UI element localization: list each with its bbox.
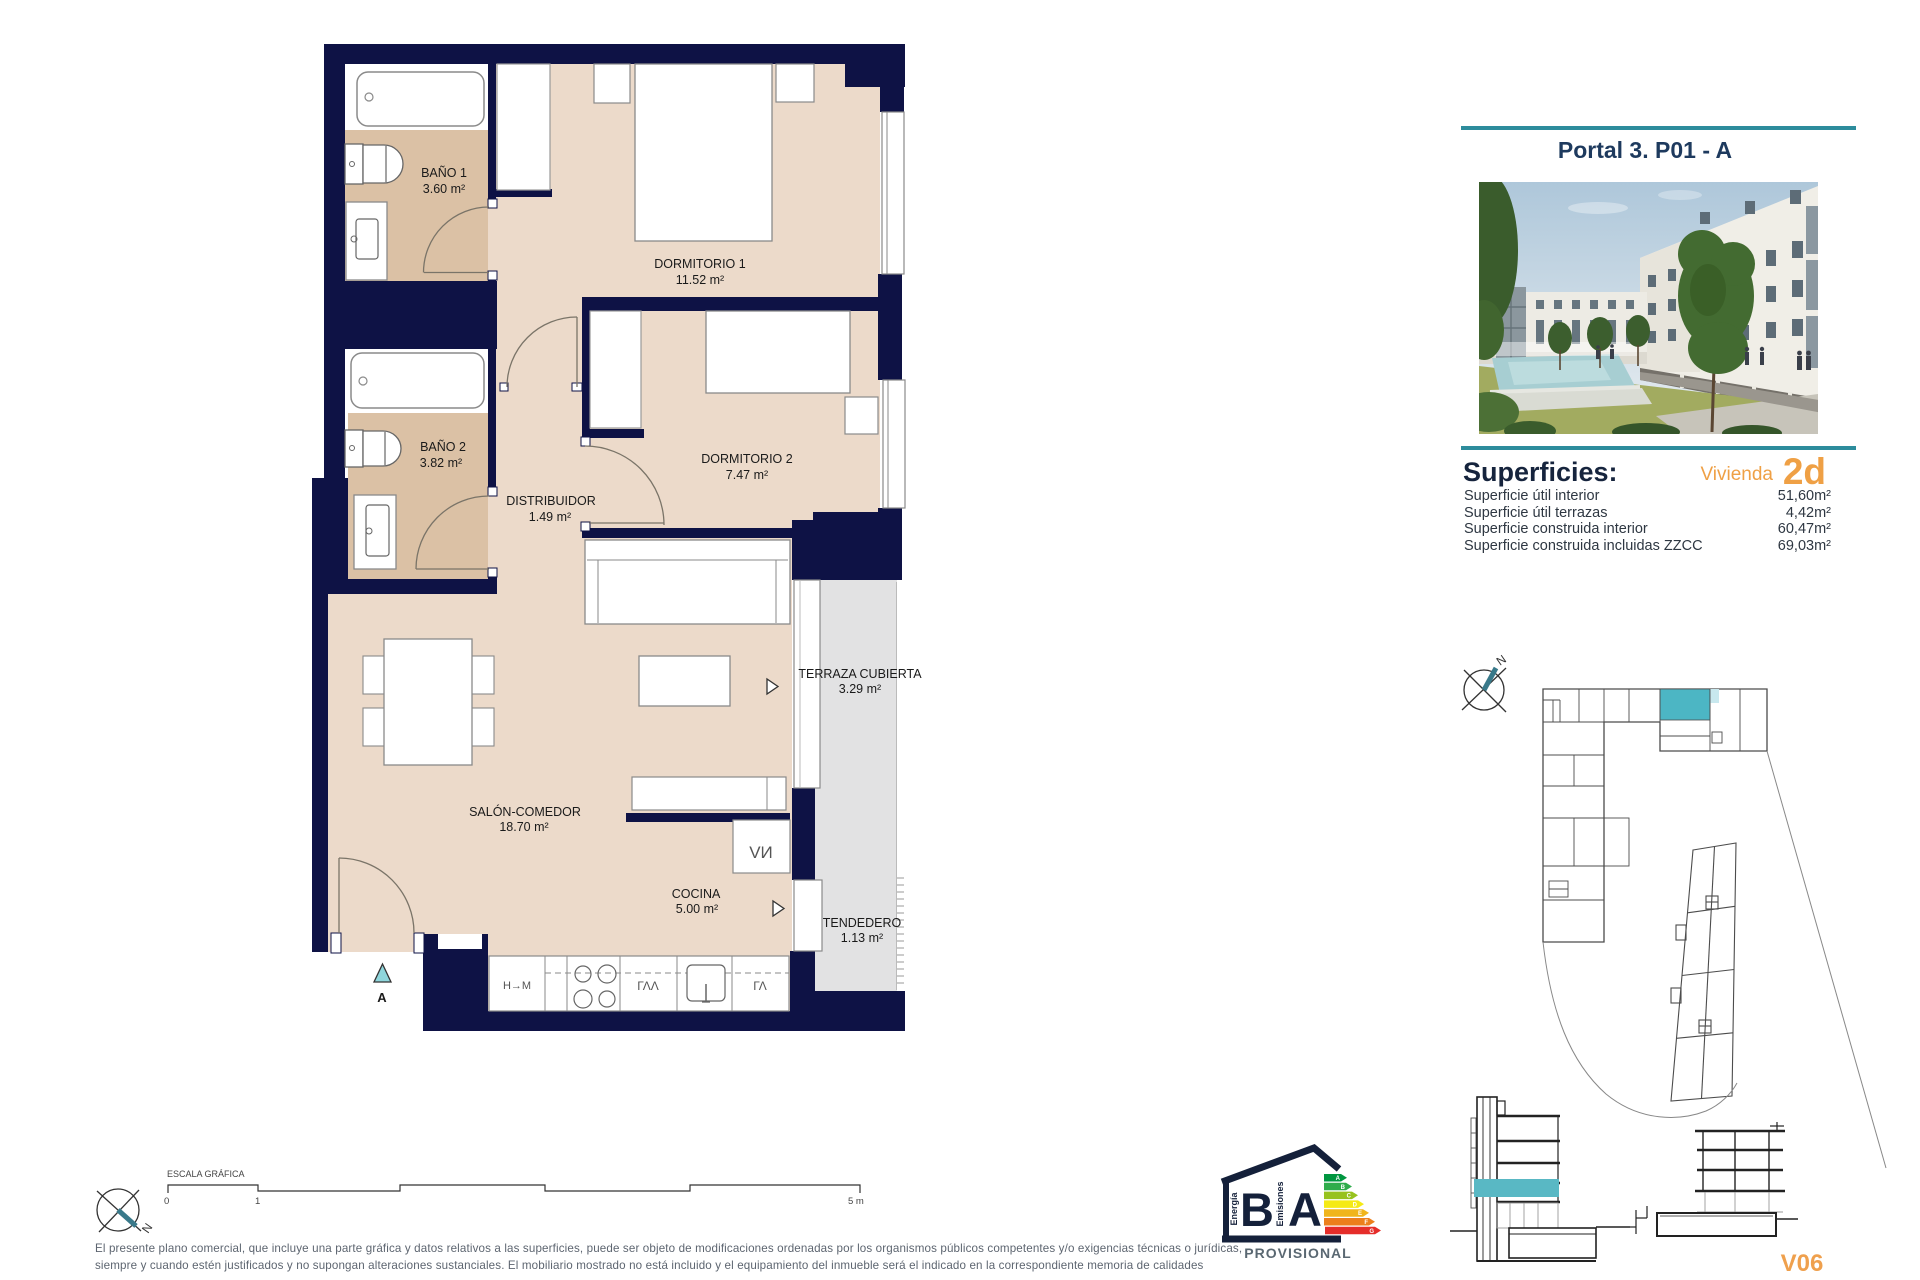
svg-text:ESCALA GRÁFICA: ESCALA GRÁFICA [167,1169,245,1179]
svg-text:Vivienda: Vivienda [1700,464,1773,485]
svg-text:51,60m²: 51,60m² [1778,488,1831,504]
svg-text:VИ: VИ [749,843,773,862]
svg-text:Superficie útil terrazas: Superficie útil terrazas [1464,505,1607,521]
svg-text:Emisiones: Emisiones [1275,1181,1285,1226]
svg-text:H→M: H→M [503,980,531,992]
svg-text:Superficie construida interior: Superficie construida interior [1464,521,1648,537]
svg-text:E: E [1358,1211,1362,1217]
svg-text:1: 1 [255,1196,260,1207]
svg-text:TENDEDERO: TENDEDERO [823,916,902,930]
svg-text:DORMITORIO 1: DORMITORIO 1 [654,257,745,271]
svg-text:D: D [1353,1203,1358,1209]
svg-text:B: B [1240,1183,1274,1236]
svg-text:DORMITORIO 2: DORMITORIO 2 [701,452,792,466]
svg-text:1.13 m²: 1.13 m² [841,931,883,945]
svg-text:5.00 m²: 5.00 m² [676,902,718,916]
svg-text:18.70 m²: 18.70 m² [499,820,548,834]
svg-text:BAÑO 2: BAÑO 2 [420,440,466,454]
svg-text:PROVISIONAL: PROVISIONAL [1244,1245,1351,1261]
svg-text:3.82 m²: 3.82 m² [420,456,462,470]
svg-text:4,42m²: 4,42m² [1786,505,1831,521]
svg-text:Superficies:: Superficies: [1463,457,1618,487]
svg-text:60,47m²: 60,47m² [1778,521,1831,537]
svg-text:siempre y cuando estén justifi: siempre y cuando estén justificados y no… [95,1259,1204,1272]
svg-text:11.52 m²: 11.52 m² [676,273,724,287]
svg-text:2d: 2d [1783,451,1826,492]
svg-text:1.49 m²: 1.49 m² [529,510,571,524]
svg-text:ΓΛΛ: ΓΛΛ [637,979,659,993]
svg-text:3.60 m²: 3.60 m² [423,182,465,196]
svg-text:ΓΛ: ΓΛ [753,979,767,993]
svg-text:TERRAZA CUBIERTA: TERRAZA CUBIERTA [798,667,922,681]
svg-text:SALÓN-COMEDOR: SALÓN-COMEDOR [469,804,581,819]
svg-text:Energía: Energía [1229,1192,1239,1226]
svg-text:V06: V06 [1781,1250,1824,1277]
svg-text:69,03m²: 69,03m² [1778,538,1831,554]
svg-text:3.29 m²: 3.29 m² [839,682,881,696]
svg-text:C: C [1347,1194,1352,1200]
svg-text:COCINA: COCINA [672,887,721,901]
svg-text:Superficie construida incluida: Superficie construida incluidas ZZCC [1464,538,1703,554]
svg-text:Superficie útil interior: Superficie útil interior [1464,488,1600,504]
svg-text:5 m: 5 m [848,1196,864,1207]
svg-text:N: N [1494,652,1509,668]
svg-text:F: F [1364,1220,1368,1226]
svg-text:G: G [1369,1229,1374,1235]
svg-text:El presente plano comercial, q: El presente plano comercial, que incluye… [95,1242,1242,1255]
svg-text:B: B [1341,1185,1346,1191]
svg-text:7.47 m²: 7.47 m² [726,468,768,482]
svg-text:0: 0 [164,1196,169,1207]
svg-text:A: A [1288,1183,1322,1236]
svg-text:A: A [377,990,387,1005]
svg-text:A: A [1336,1176,1341,1182]
svg-text:Portal 3. P01 - A: Portal 3. P01 - A [1558,137,1732,163]
svg-text:BAÑO 1: BAÑO 1 [421,166,467,180]
svg-text:DISTRIBUIDOR: DISTRIBUIDOR [506,494,596,508]
